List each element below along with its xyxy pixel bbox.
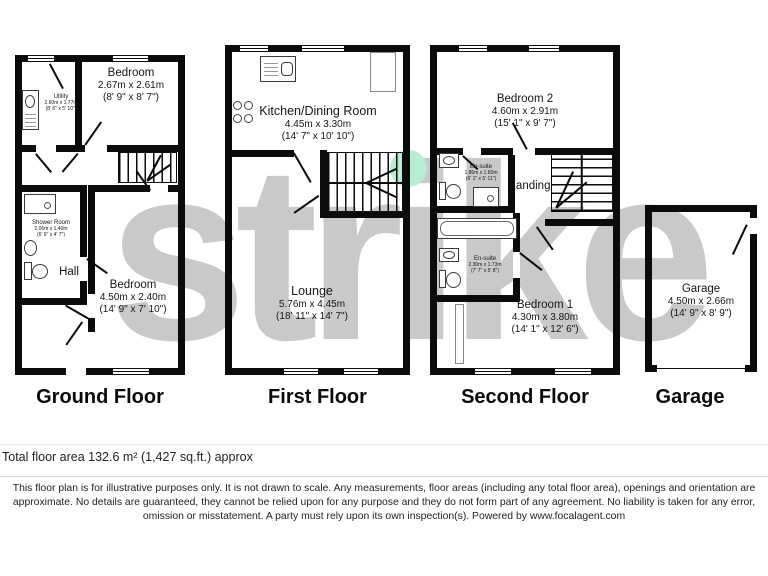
window — [475, 368, 511, 375]
door-leaf — [520, 252, 543, 270]
kitchen-sink-icon — [260, 56, 296, 82]
toilet-cistern-icon — [439, 270, 446, 288]
window — [113, 55, 148, 62]
door-leaf — [536, 226, 553, 250]
toilet-cistern-icon — [439, 182, 446, 200]
room-dim-metric: 4.50m x 2.40m — [93, 292, 173, 304]
room-name: Bedroom 2 — [465, 92, 585, 106]
room-label-ensuite-1: En-suite 1.86m x 1.80m (6' 1" x 5' 11") — [461, 164, 501, 183]
stair-fan-line — [146, 155, 161, 181]
divider-line — [0, 476, 768, 477]
washbasin-icon — [439, 153, 459, 168]
room-dim-imperial: (14' 9" x 7' 10") — [93, 304, 173, 316]
drain-icon — [44, 202, 51, 209]
wall — [437, 206, 515, 213]
wall — [22, 298, 87, 305]
room-dim-imperial: (6' 9" x 4' 7") — [26, 233, 76, 239]
door-leaf — [732, 224, 747, 255]
room-label-ensuite-2: En-suite 2.30m x 1.73m (7' 7" x 5' 8") — [463, 256, 507, 275]
floor-title-first: First Floor — [225, 386, 410, 409]
drainer-lines — [264, 62, 278, 76]
room-label-hall: Hall — [54, 265, 84, 279]
room-name: Lounge — [252, 284, 372, 299]
toilet-bowl-icon — [32, 264, 48, 279]
drain-icon — [487, 195, 494, 202]
toilet-cistern-icon — [24, 262, 32, 280]
window-internal — [455, 304, 464, 364]
room-dim-imperial: (14' 1" x 12' 6") — [485, 324, 605, 336]
floorplan-ground: Utility 2.60m x 1.77m (8' 6" x 5' 10") B… — [15, 55, 185, 375]
disclaimer-text: This floor plan is for illustrative purp… — [2, 482, 766, 524]
floorplan-first: Kitchen/Dining Room 4.45m x 3.30m (14' 7… — [225, 45, 410, 375]
room-dim-imperial: (14' 7" x 10' 10") — [258, 131, 378, 143]
room-dim-metric: 5.76m x 4.45m — [252, 299, 372, 311]
room-name: Bedroom — [88, 66, 174, 80]
room-label-landing: Landing — [499, 179, 561, 193]
utility-sink-icon — [22, 90, 39, 130]
flue-void — [370, 52, 396, 92]
window — [555, 368, 591, 375]
divider-line — [0, 444, 768, 445]
room-dim-metric: 4.45m x 3.30m — [258, 119, 378, 131]
room-label-bedroom-2: Bedroom 2 4.60m x 2.91m (15' 1" x 9' 7") — [465, 92, 585, 130]
window — [284, 368, 318, 375]
door-opening — [66, 368, 86, 375]
room-name: Hall — [54, 265, 84, 279]
total-floor-area-text: Total floor area 132.6 m² (1,427 sq.ft.)… — [2, 450, 253, 464]
toilet-bowl-icon — [446, 272, 461, 288]
window — [240, 45, 268, 52]
wall — [168, 185, 178, 192]
room-label-bedroom-bottom: Bedroom 4.50m x 2.40m (14' 9" x 7' 10") — [93, 278, 173, 316]
door-leaf — [84, 121, 101, 145]
basin-bowl-icon — [443, 251, 455, 259]
stair-fan-line — [366, 182, 397, 198]
drainer-lines — [25, 113, 36, 127]
room-dim-imperial: (15' 1" x 9' 7") — [465, 118, 585, 130]
window — [344, 368, 378, 375]
room-name: Bedroom — [93, 278, 173, 292]
floor-title-second: Second Floor — [430, 386, 620, 409]
door-opening — [513, 252, 520, 278]
basin-bowl-icon — [443, 156, 455, 165]
wall — [80, 192, 87, 305]
room-dim-imperial: (8' 9" x 8' 7") — [88, 92, 174, 104]
wall — [320, 211, 403, 218]
wall — [320, 150, 327, 218]
floorplan-garage: Garage 4.50m x 2.66m (14' 9" x 8' 9") — [645, 205, 757, 372]
hob-icon — [232, 100, 254, 126]
room-label-bedroom-1: Bedroom 1 4.30m x 3.80m (14' 1" x 12' 6"… — [485, 298, 605, 336]
door-leaf — [35, 153, 52, 172]
room-label-kitchen-dining: Kitchen/Dining Room 4.45m x 3.30m (14' 7… — [258, 104, 378, 144]
room-dim-metric: 2.67m x 2.61m — [88, 80, 174, 92]
stairs-icon — [327, 152, 403, 212]
window — [113, 368, 149, 375]
wall — [232, 150, 294, 157]
room-dim-imperial: (6' 1" x 5' 11") — [461, 177, 501, 183]
door-opening — [85, 145, 107, 152]
burner-icon — [244, 101, 253, 110]
bathtub-icon — [437, 218, 517, 239]
sink-bowl-icon — [25, 95, 35, 108]
room-dim-imperial: (7' 7" x 5' 8") — [463, 269, 507, 275]
wall — [22, 185, 87, 192]
door-leaf — [65, 305, 88, 319]
door-leaf — [62, 153, 79, 172]
sink-bowl-icon — [281, 62, 293, 76]
room-dim-metric: 4.50m x 2.66m — [656, 296, 746, 308]
floor-title-ground: Ground Floor — [15, 386, 185, 409]
room-label-utility: Utility 2.60m x 1.77m (8' 6" x 5' 10") — [40, 94, 82, 113]
room-dim-imperial: (14' 9" x 8' 9") — [656, 308, 746, 320]
room-dim-imperial: (18' 11" x 14' 7") — [252, 311, 372, 323]
window — [459, 45, 487, 52]
door-leaf — [294, 195, 319, 213]
burner-icon — [244, 114, 253, 123]
room-label-shower-room: Shower Room 2.06m x 1.40m (6' 9" x 4' 7"… — [26, 220, 76, 239]
garage-door — [657, 365, 745, 372]
room-dim-metric: 4.60m x 2.91m — [465, 106, 585, 118]
door-leaf — [65, 321, 82, 345]
door-opening — [750, 218, 757, 234]
room-label-garage: Garage 4.50m x 2.66m (14' 9" x 8' 9") — [656, 282, 746, 320]
wall — [88, 185, 150, 192]
wall — [545, 219, 613, 226]
burner-icon — [233, 101, 242, 110]
window — [302, 45, 344, 52]
room-label-lounge: Lounge 5.76m x 4.45m (18' 11" x 14' 7") — [252, 284, 372, 324]
floorplan-second: Bedroom 2 4.60m x 2.91m (15' 1" x 9' 7")… — [430, 45, 620, 375]
washbasin-icon — [24, 240, 37, 256]
floor-title-garage: Garage — [630, 386, 750, 409]
room-dim-imperial: (8' 6" x 5' 10") — [40, 107, 82, 113]
shower-tray-icon — [473, 187, 499, 207]
toilet-bowl-icon — [446, 184, 461, 199]
bathtub-inner — [440, 221, 514, 236]
room-name: Kitchen/Dining Room — [258, 104, 378, 119]
room-dim-metric: 4.30m x 3.80m — [485, 312, 605, 324]
door-leaf — [49, 63, 63, 88]
shower-tray-icon — [24, 194, 56, 214]
window — [28, 55, 54, 62]
stairs-icon — [118, 152, 177, 183]
washbasin-icon — [439, 248, 459, 262]
room-label-bedroom-top: Bedroom 2.67m x 2.61m (8' 9" x 8' 7") — [88, 66, 174, 104]
room-name: Garage — [656, 282, 746, 296]
room-name: Bedroom 1 — [485, 298, 605, 312]
door-leaf — [293, 152, 311, 182]
door-opening — [36, 145, 56, 152]
wall — [481, 148, 513, 155]
window — [529, 45, 559, 52]
room-name: Landing — [499, 179, 561, 193]
burner-icon — [233, 114, 242, 123]
